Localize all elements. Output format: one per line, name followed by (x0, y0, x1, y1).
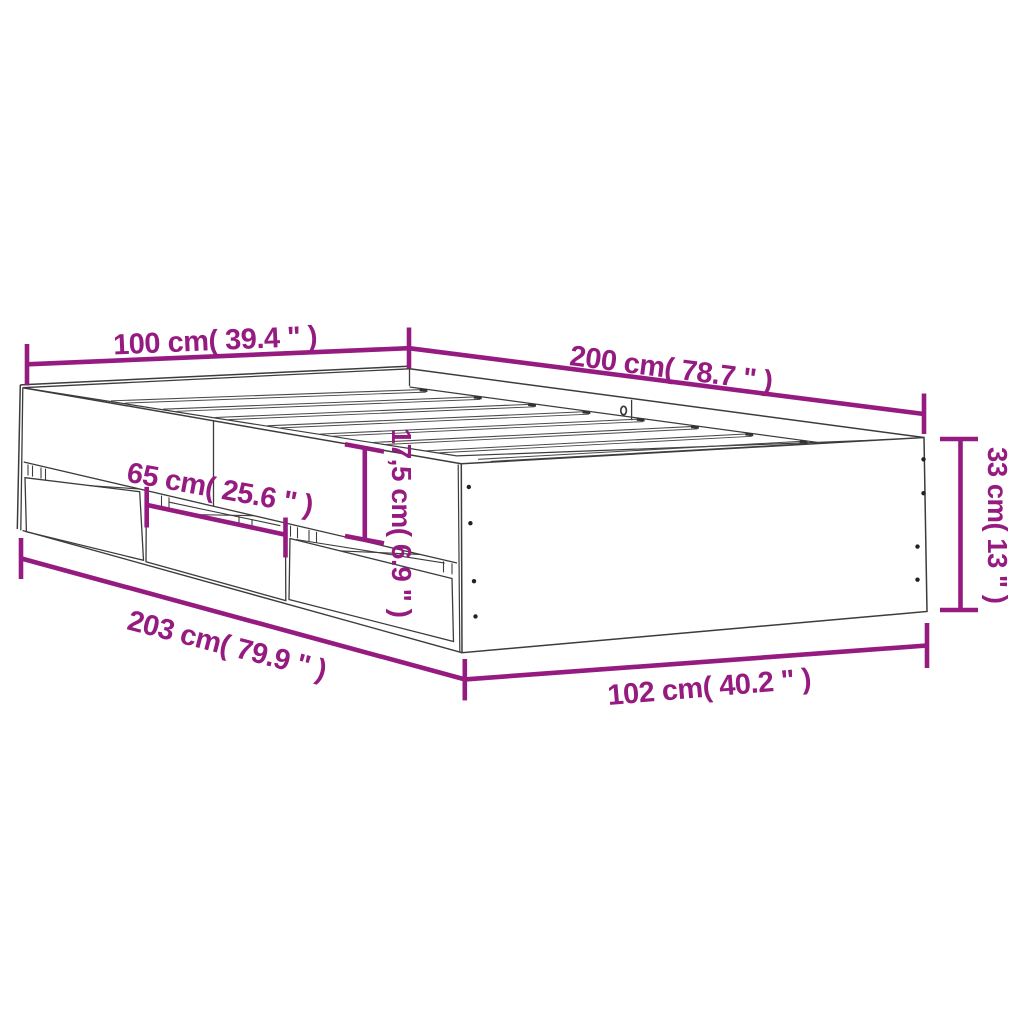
svg-text:33 cm( 13 " ): 33 cm( 13 " ) (982, 447, 1013, 603)
svg-text:17,5 cm( 6.9 " ): 17,5 cm( 6.9 " ) (386, 429, 417, 618)
